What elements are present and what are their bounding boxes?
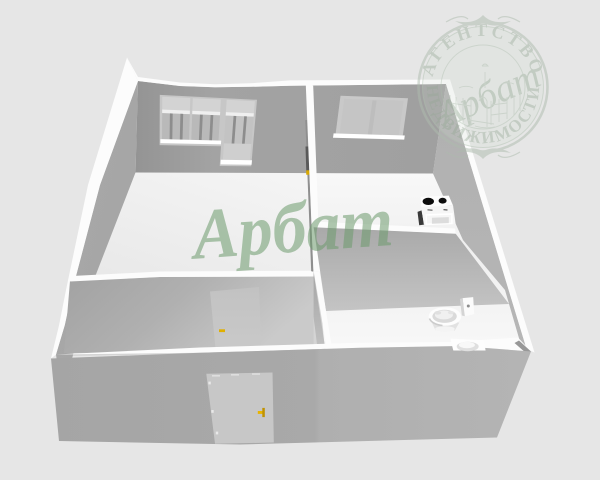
svg-text:Арбат: Арбат [187, 181, 396, 275]
